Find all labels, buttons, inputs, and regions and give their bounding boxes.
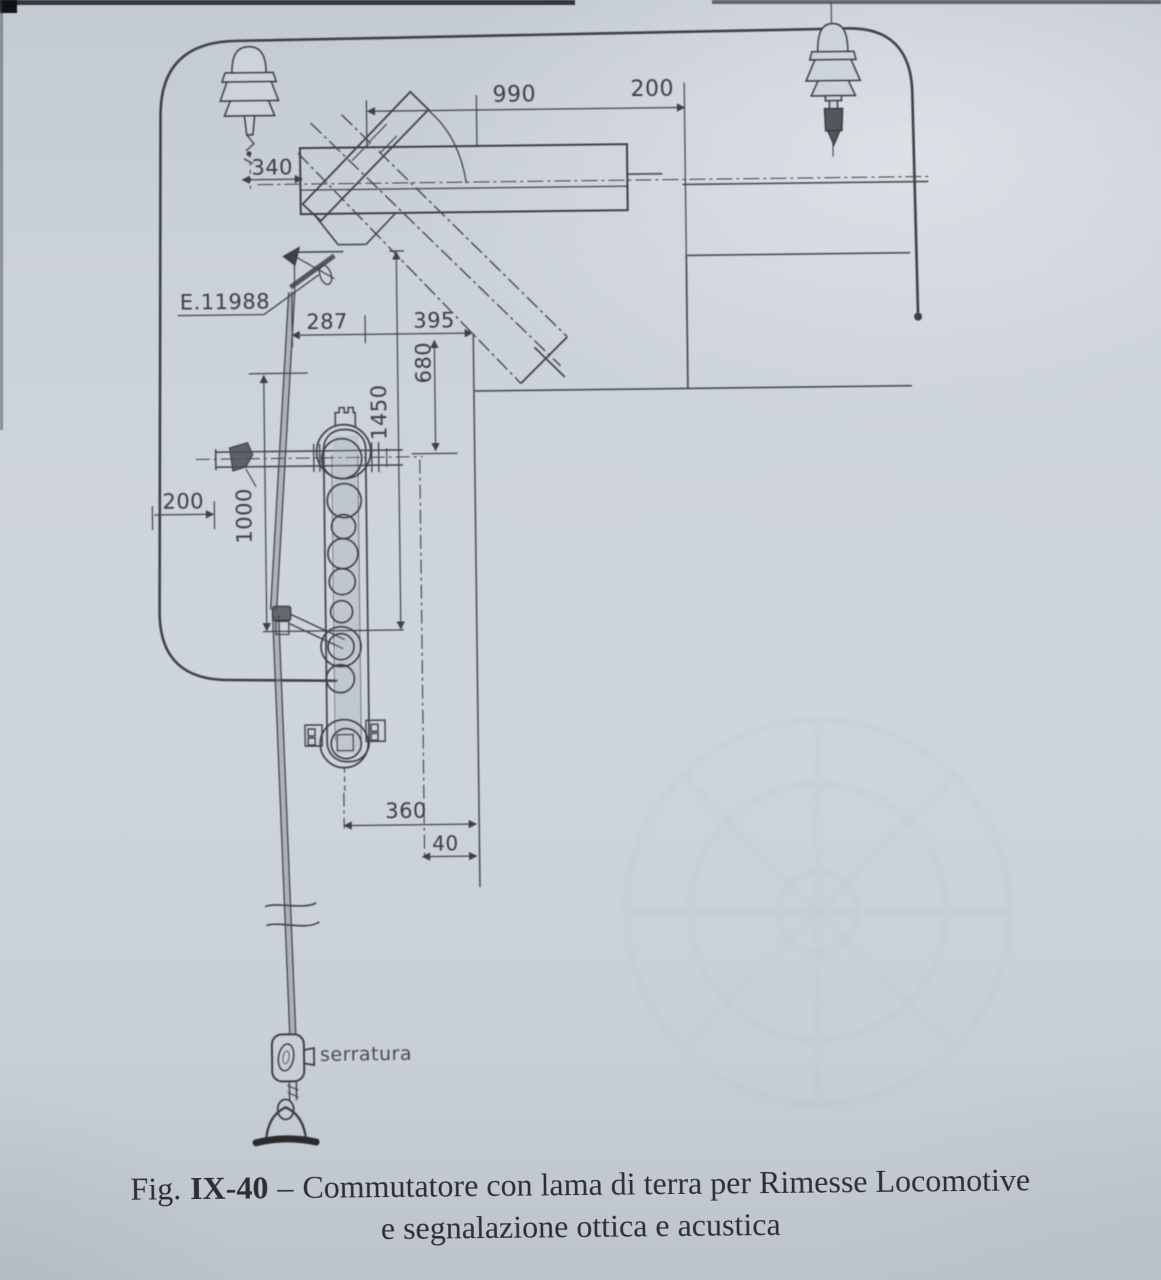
dim-top-right-offset: 200 <box>630 77 674 103</box>
dim-pivot-right: 395 <box>413 308 455 333</box>
caption-fig-prefix: Fig. <box>130 1168 181 1209</box>
pull-handle <box>256 1099 317 1143</box>
dim-rod-length: 1000 <box>232 488 257 544</box>
rod-break-marks <box>265 903 319 926</box>
dim-vertical-drop: 680 <box>411 342 436 384</box>
caption-separator: – <box>277 1167 293 1207</box>
dimension-lines <box>147 82 694 891</box>
dim-base-span: 360 <box>385 799 427 824</box>
caption-fig-number: IX-40 <box>190 1167 269 1208</box>
dim-frame-to-rod: 200 <box>162 489 204 514</box>
figure-caption: Fig. IX-40 – Commutatore con lama di ter… <box>0 1158 1161 1252</box>
page-showthrough-ghost <box>626 720 1010 1104</box>
drive-bracket <box>282 213 397 295</box>
dim-pivot-left: 287 <box>306 310 348 335</box>
dim-top-span: 990 <box>492 82 536 108</box>
lower-right-structure <box>473 253 912 391</box>
scanned-page: 990 200 340 287 395 680 1450 200 1000 36… <box>0 0 1161 1280</box>
dim-blade-length: 1450 <box>367 384 392 440</box>
caption-title: Commutatore con lama di terra per Rimess… <box>302 1159 1030 1207</box>
switch-arm-box <box>257 140 931 214</box>
horizontal-drive-rod <box>196 441 424 488</box>
drawing-reference-label: E.11988 <box>180 290 271 315</box>
right-insulator <box>805 2 861 157</box>
lock-serratura <box>272 1034 315 1101</box>
lock-label: serratura <box>320 1043 412 1066</box>
technical-drawing: 990 200 340 287 395 680 1450 200 1000 36… <box>0 0 1161 1280</box>
frame-outline <box>153 28 927 683</box>
dim-insulator-offset: 340 <box>251 155 293 180</box>
dim-base-offset: 40 <box>432 831 459 855</box>
